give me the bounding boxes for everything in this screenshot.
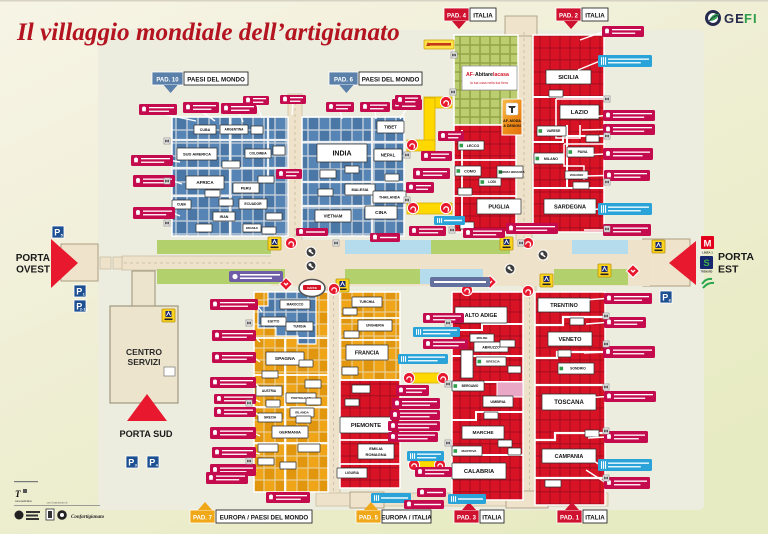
svg-text:T: T: [15, 489, 21, 499]
svg-text:EUROPA / ITALIA: EUROPA / ITALIA: [381, 515, 432, 522]
svg-text:MARCHE: MARCHE: [472, 430, 494, 436]
svg-text:EUROPA / PAESI DEL MONDO: EUROPA / PAESI DEL MONDO: [220, 515, 309, 522]
svg-text:PAESI DEL MONDO: PAESI DEL MONDO: [362, 77, 420, 84]
svg-text:PORTA: PORTA: [718, 251, 754, 263]
svg-text:BRASILE: BRASILE: [246, 226, 258, 230]
svg-text:EST: EST: [718, 264, 739, 276]
svg-text:AUSTRIA: AUSTRIA: [262, 389, 277, 393]
svg-text:2-10: 2-10: [80, 307, 89, 312]
svg-text:Il villaggio mondiale dell’art: Il villaggio mondiale dell’artigianato: [16, 19, 400, 46]
svg-text:PIEMONTE: PIEMONTE: [351, 423, 381, 429]
svg-text:MILANO: MILANO: [544, 157, 558, 161]
svg-text:ALTO ADIGE: ALTO ADIGE: [465, 313, 498, 319]
svg-text:LECCO: LECCO: [467, 144, 480, 148]
svg-text:VENETO: VENETO: [559, 337, 583, 343]
svg-text:PAD. 10: PAD. 10: [156, 78, 179, 84]
svg-text:BRESCIA: BRESCIA: [486, 360, 500, 364]
svg-text:TURCHIA: TURCHIA: [359, 300, 375, 304]
svg-text:M: M: [704, 239, 712, 250]
svg-text:TUNISIA: TUNISIA: [293, 325, 306, 329]
svg-text:COLOMBIA: COLOMBIA: [249, 152, 267, 156]
svg-text:ARGENTINA: ARGENTINA: [225, 128, 245, 132]
svg-text:ITALIA: ITALIA: [482, 515, 502, 522]
svg-text:P: P: [128, 458, 134, 468]
svg-text:EMILIA: EMILIA: [369, 446, 383, 451]
svg-text:THAILANDA: THAILANDA: [379, 195, 400, 199]
svg-text:PORTA SUD: PORTA SUD: [119, 429, 172, 439]
svg-text:PAESI DEL MONDO: PAESI DEL MONDO: [187, 77, 245, 84]
svg-text:CALABRIA: CALABRIA: [464, 469, 495, 475]
svg-text:SERVIZI: SERVIZI: [128, 357, 161, 367]
svg-text:LODI: LODI: [488, 180, 496, 184]
svg-text:INDIA: INDIA: [332, 151, 351, 158]
svg-text:AF-: AF-: [466, 72, 475, 78]
svg-text:CAFFE: CAFFE: [307, 286, 317, 290]
svg-text:SARDEGNA: SARDEGNA: [554, 205, 586, 211]
svg-text:la tua casa nella tua fiera: la tua casa nella tua fiera: [470, 81, 508, 85]
svg-text:LIGURIA: LIGURIA: [345, 471, 359, 475]
svg-text:SICILIA: SICILIA: [558, 75, 579, 81]
svg-text:con il patrocinio di: con il patrocinio di: [47, 501, 68, 505]
svg-text:PAD. 1: PAD. 1: [560, 516, 580, 522]
svg-text:P: P: [662, 293, 668, 303]
svg-text:LAZIO: LAZIO: [571, 110, 589, 116]
svg-text:FI: FI: [744, 11, 758, 26]
svg-text:UMBRIA: UMBRIA: [490, 400, 505, 404]
svg-text:CINA: CINA: [375, 210, 387, 216]
svg-text:cameradimilano: cameradimilano: [15, 500, 33, 503]
svg-text:PAD. 4: PAD. 4: [447, 14, 467, 20]
svg-text:S: S: [703, 258, 709, 269]
svg-text:lacasa: lacasa: [493, 72, 509, 78]
svg-text:VIGEVANO: VIGEVANO: [570, 173, 584, 177]
svg-text:MAROCCO: MAROCCO: [287, 303, 304, 307]
svg-text:IRAN: IRAN: [220, 215, 229, 219]
svg-text:AFRICA: AFRICA: [196, 180, 214, 185]
svg-text:FRANCIA: FRANCIA: [355, 350, 379, 356]
svg-text:LINEA 1: LINEA 1: [702, 251, 713, 255]
svg-text:P: P: [149, 458, 155, 468]
svg-text:VARESE: VARESE: [547, 129, 561, 133]
svg-text:MONZA BRIANZA: MONZA BRIANZA: [499, 170, 525, 174]
svg-text:Abitare: Abitare: [475, 72, 493, 78]
svg-text:SONDRIO: SONDRIO: [570, 367, 586, 371]
svg-text:GERMANIA: GERMANIA: [279, 429, 301, 434]
svg-text:P: P: [54, 228, 60, 238]
svg-text:CENTRO: CENTRO: [126, 347, 162, 357]
svg-text:PUGLIA: PUGLIA: [488, 205, 509, 211]
svg-text:CUBA: CUBA: [177, 203, 187, 207]
svg-text:ABRUZZO: ABRUZZO: [482, 345, 500, 349]
svg-text:MANTOVA: MANTOVA: [462, 449, 478, 453]
svg-text:ITALIA: ITALIA: [473, 13, 493, 20]
svg-text:PAD. 7: PAD. 7: [193, 516, 213, 522]
svg-text:ITALIA: ITALIA: [585, 13, 605, 20]
svg-text:VIETNAM: VIETNAM: [324, 214, 343, 219]
svg-text:ITALIA: ITALIA: [585, 515, 605, 522]
svg-text:MALESIA: MALESIA: [351, 188, 368, 192]
svg-text:AF–MODA: AF–MODA: [503, 119, 521, 123]
svg-text:MOLISE: MOLISE: [477, 336, 488, 340]
svg-text:GRECIA: GRECIA: [264, 416, 277, 420]
svg-text:P: P: [76, 287, 82, 297]
svg-text:CUBA: CUBA: [200, 128, 211, 132]
svg-text:EGITTO: EGITTO: [268, 320, 280, 324]
svg-text:PAD. 3: PAD. 3: [457, 516, 477, 522]
svg-text:& DESIGN: & DESIGN: [503, 124, 521, 128]
svg-text:SUD AMERICA: SUD AMERICA: [183, 151, 211, 156]
svg-text:BERGAMO: BERGAMO: [462, 384, 479, 388]
svg-text:SPAGNA: SPAGNA: [275, 356, 296, 362]
svg-text:ROMAGNA: ROMAGNA: [365, 452, 386, 457]
svg-text:PERU: PERU: [241, 186, 252, 190]
svg-text:TIBET: TIBET: [384, 125, 397, 130]
svg-text:PORTA: PORTA: [16, 253, 50, 264]
svg-text:GE: GE: [724, 11, 745, 26]
svg-text:NEPAL: NEPAL: [381, 153, 396, 158]
svg-text:PAD. 6: PAD. 6: [334, 78, 354, 84]
svg-text:PAVIA: PAVIA: [578, 150, 588, 154]
svg-text:TRENORD: TRENORD: [701, 271, 713, 274]
svg-text:PAD. 5: PAD. 5: [359, 516, 379, 522]
svg-text:COMO: COMO: [464, 169, 476, 173]
svg-text:OVEST: OVEST: [16, 265, 50, 276]
svg-text:CAMPANIA: CAMPANIA: [555, 454, 584, 460]
svg-text:TRENTINO: TRENTINO: [550, 303, 578, 309]
svg-text:ECUADOR: ECUADOR: [244, 202, 262, 206]
svg-text:TOSCANA: TOSCANA: [554, 400, 584, 406]
svg-text:UNGHERIA: UNGHERIA: [366, 324, 385, 328]
svg-text:PAD. 2: PAD. 2: [559, 14, 579, 20]
svg-text:IRLANDA: IRLANDA: [295, 411, 309, 415]
svg-text:Confartigianato: Confartigianato: [71, 515, 105, 520]
